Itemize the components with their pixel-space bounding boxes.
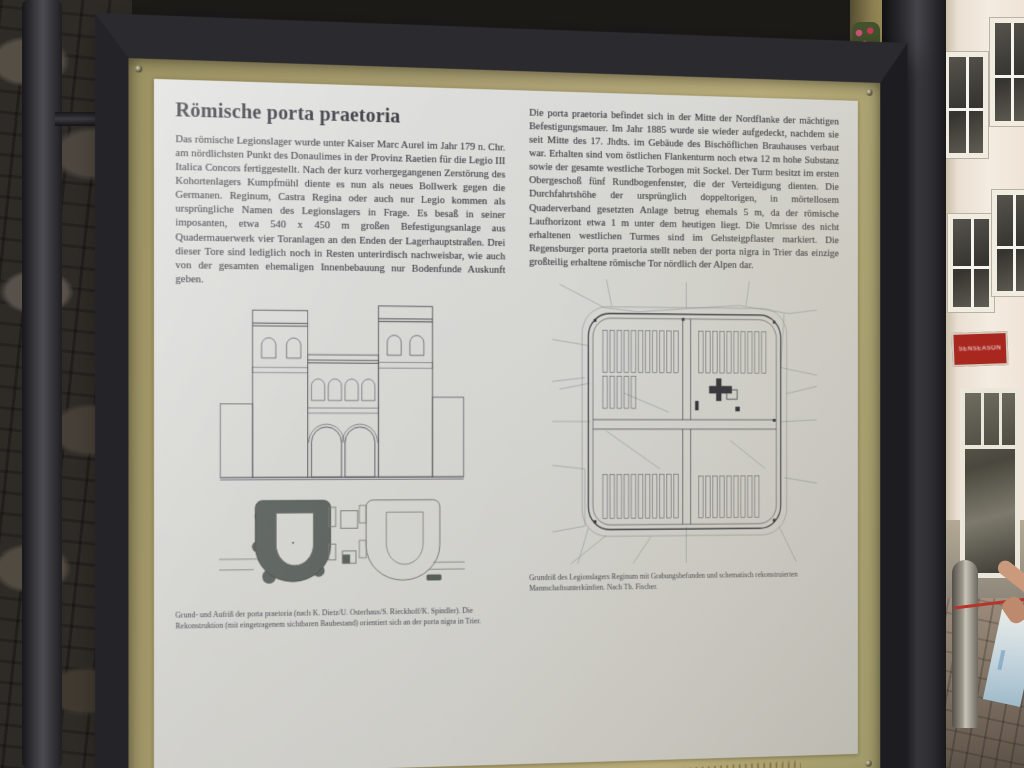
graffiti-mark <box>633 760 801 768</box>
sign-paragraph-right: Die porta praetoria befindet sich in der… <box>529 106 839 273</box>
sign-mat-board: Römische porta praetoria Das römische Le… <box>128 58 880 768</box>
street-photo-scene: SENSEASON Römische porta praetoria <box>0 0 1024 768</box>
window <box>992 190 1024 296</box>
sign-title: Römische porta praetoria <box>175 97 505 131</box>
window <box>944 52 988 158</box>
sign-paper: Römische porta praetoria Das römische Le… <box>154 79 858 768</box>
porta-praetoria-elevation-figure <box>218 300 466 480</box>
sign-paragraph-left: Das römische Legionslager wurde unter Ka… <box>175 132 505 290</box>
figure-caption-right: Grundriß des Legionslagers Reginum mit G… <box>529 568 839 594</box>
pedestrian-hand <box>976 572 1024 636</box>
screw-icon <box>135 65 142 72</box>
screw-icon <box>866 760 872 767</box>
pedestrian-fingers <box>999 594 1024 627</box>
shop-sign: SENSEASON <box>951 331 1008 367</box>
information-sign: Römische porta praetoria Das römische Le… <box>95 13 908 768</box>
figure-caption-left: Grund- und Aufriß der porta praetoria (n… <box>175 604 505 632</box>
bollard-post <box>952 560 978 728</box>
shop-sign-label: SENSEASON <box>959 345 1002 352</box>
window <box>948 214 994 312</box>
window <box>990 18 1024 126</box>
shop-door <box>960 388 1020 578</box>
screw-icon <box>866 89 872 96</box>
porta-praetoria-ground-plan-figure <box>211 489 472 601</box>
legion-camp-plan-figure <box>529 278 839 565</box>
sign-column-left: Römische porta praetoria Das römische Le… <box>175 95 505 764</box>
sign-column-right: Die porta praetoria befindet sich in der… <box>529 106 839 754</box>
